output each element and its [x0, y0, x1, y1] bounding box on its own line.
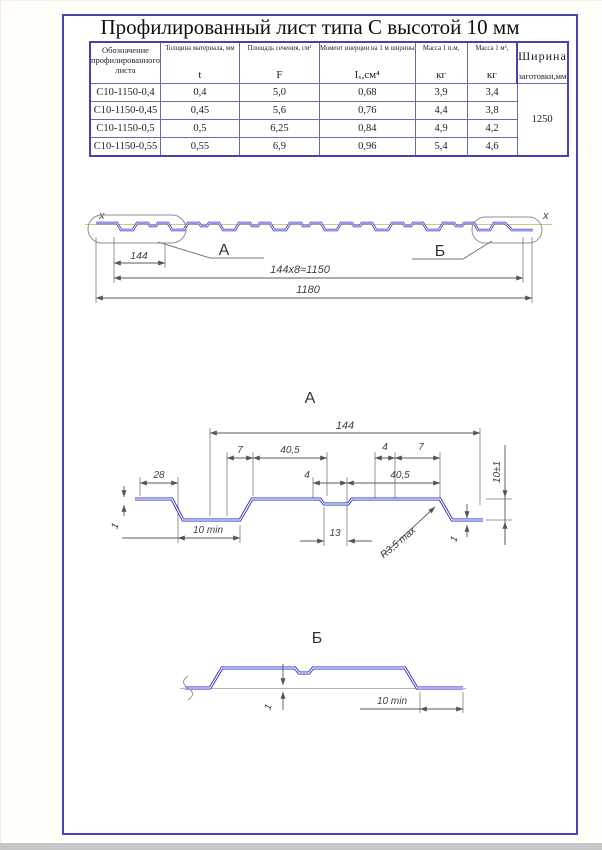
cell-value: 3,9 [415, 84, 467, 102]
cell-value: 3,4 [467, 84, 517, 102]
dim-7-right: 7 [418, 442, 424, 453]
profile-section-a [135, 499, 483, 520]
profile-section-b-inner [185, 668, 463, 688]
cell-value: 6,9 [239, 138, 319, 157]
col-header-mass-pm: Масса 1 п.м,кг [415, 42, 467, 84]
cell-value: 6,25 [239, 120, 319, 138]
dim-40-5-bottom: 40,5 [390, 470, 410, 481]
table-row: С10-1150-0,4 0,4 5,0 0,68 3,9 3,4 1250 [90, 84, 568, 102]
axis-label-right: x [542, 210, 549, 222]
detail-b-callout: Б [435, 243, 446, 260]
dim-40-5-top: 40,5 [280, 445, 300, 456]
cell-blank-width: 1250 [517, 84, 568, 157]
dim-working-width: 144x8≈1150 [270, 264, 331, 276]
cell-designation: С10-1150-0,45 [90, 102, 160, 120]
col-header-thickness: Толщина материала, ммt [160, 42, 239, 84]
dim-module: 144 [130, 250, 148, 262]
detail-a-drawing: А [110, 390, 512, 561]
dim-height: 10±1 [492, 461, 503, 483]
technical-drawings: x x А Б 144 144x8≈1150 1180 А [0, 195, 602, 740]
cell-designation: С10-1150-0,5 [90, 120, 160, 138]
dim-4-mid: 4 [304, 470, 310, 481]
cell-value: 4,4 [415, 102, 467, 120]
cell-value: 4,2 [467, 120, 517, 138]
cell-value: 0,4 [160, 84, 239, 102]
spec-table: Обозначение профилированного листа Толщи… [89, 41, 569, 157]
col-header-mass-m2: Масса 1 м²,кг [467, 42, 517, 84]
profile-section-b [185, 668, 463, 688]
detail-b-leader [412, 241, 492, 259]
col-header-designation: Обозначение профилированного листа [90, 42, 160, 84]
dim-13: 13 [329, 528, 341, 539]
detail-b-drawing: Б 1 10 min [180, 630, 466, 713]
dim-144: 144 [336, 420, 354, 432]
cell-value: 0,5 [160, 120, 239, 138]
profile-section-a-inner [135, 499, 483, 520]
detail-a-leader [158, 242, 264, 258]
cell-value: 0,76 [319, 102, 415, 120]
col-header-inertia: Момент инерции на 1 м шириныIₓ,см⁴ [319, 42, 415, 84]
table-row: С10-1150-0,5 0,5 6,25 0,84 4,9 4,2 [90, 120, 568, 138]
profile-outline [96, 223, 533, 230]
extension-lines [420, 692, 463, 713]
dim-28: 28 [152, 470, 165, 481]
cell-value: 0,55 [160, 138, 239, 157]
detail-a-callout: А [219, 242, 230, 259]
dim-10min-b: 10 min [377, 696, 407, 707]
cell-value: 0,68 [319, 84, 415, 102]
cell-value: 5,4 [415, 138, 467, 157]
dim-radius: R3,5 max [378, 524, 419, 561]
detail-b-title: Б [312, 630, 323, 647]
window-bottom-bar [0, 843, 602, 850]
dim-thickness-right: 1 [449, 535, 461, 544]
axis-label-left: x [98, 210, 105, 222]
table-row: С10-1150-0,55 0,55 6,9 0,96 5,4 4,6 [90, 138, 568, 157]
cell-value: 0,84 [319, 120, 415, 138]
cell-designation: С10-1150-0,4 [90, 84, 160, 102]
dim-total-width: 1180 [296, 284, 321, 296]
document-page: { "title": "Профилированный лист типа С … [0, 0, 602, 850]
dimension-lines [122, 433, 505, 556]
dim-7-left: 7 [237, 445, 243, 456]
cell-value: 5,0 [239, 84, 319, 102]
cell-value: 4,6 [467, 138, 517, 157]
dim-thickness-left: 1 [110, 522, 122, 531]
table-header-row: Обозначение профилированного листа Толщи… [90, 42, 568, 84]
overview-drawing: x x А Б 144 144x8≈1150 1180 [85, 210, 552, 303]
cell-value: 4,9 [415, 120, 467, 138]
table-row: С10-1150-0,45 0,45 5,6 0,76 4,4 3,8 [90, 102, 568, 120]
dim-thickness-b: 1 [263, 703, 275, 712]
detail-a-title: А [305, 390, 316, 407]
dim-10min-a: 10 min [193, 525, 223, 536]
cell-designation: С10-1150-0,55 [90, 138, 160, 157]
cell-value: 0,45 [160, 102, 239, 120]
dim-4-right: 4 [382, 442, 388, 453]
col-header-width: Шириназаготовки,мм [517, 42, 568, 84]
cell-value: 5,6 [239, 102, 319, 120]
cell-value: 3,8 [467, 102, 517, 120]
page-title: Профилированный лист типа С высотой 10 м… [78, 15, 542, 40]
col-header-area: Площадь сечения, см²F [239, 42, 319, 84]
cell-value: 0,96 [319, 138, 415, 157]
